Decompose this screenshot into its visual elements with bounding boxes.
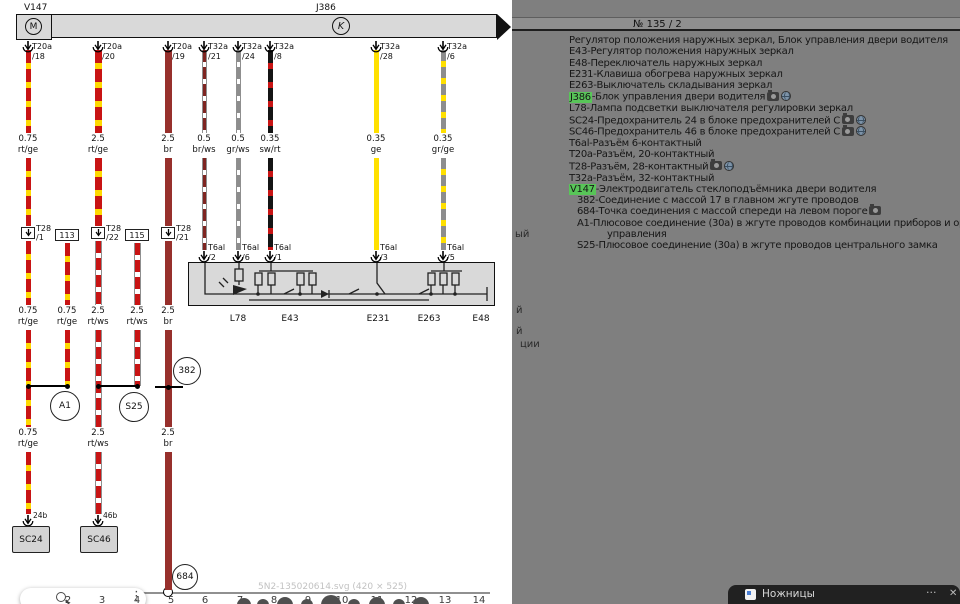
component-box	[188, 262, 495, 306]
wire-gauge-label: 0.35 ge	[367, 134, 386, 156]
legend-line: J386-Блок управления двери водителя	[569, 91, 960, 103]
wire-segment	[268, 50, 273, 133]
t28-name: T28	[106, 224, 121, 233]
globe-icon[interactable]	[856, 115, 866, 125]
t6al-name: T6al	[380, 243, 397, 252]
junction-ref-circle: A1	[50, 391, 80, 421]
component-circuitry	[189, 263, 496, 307]
legend-line: Е231-Клавиша обогрева наружных зеркал	[569, 69, 960, 80]
wire-gauge-label: 0.75 rt/ge	[57, 306, 77, 328]
wire-segment	[95, 50, 102, 133]
t28-name: T28	[36, 224, 51, 233]
wire-segment	[65, 243, 70, 305]
legend-line: V147-Электродвигатель стеклоподъёмника д…	[569, 184, 960, 195]
t28-pin-number: /22	[106, 233, 119, 242]
wire-gauge-label: 0.35 sw/rt	[259, 134, 280, 156]
component-label: E263	[418, 314, 441, 324]
wire-segment	[165, 330, 172, 427]
fuse-pin-label: 46b	[103, 511, 117, 520]
wire-segment	[134, 243, 141, 305]
snipping-tool-title: Ножницы	[762, 588, 815, 600]
wire-segment	[441, 50, 446, 133]
wire-gauge-label: 2.5 rt/ge	[88, 134, 108, 156]
fuse-box: SC46	[80, 526, 118, 553]
wire-segment	[95, 241, 102, 305]
v147-label: V147	[24, 3, 47, 13]
connector-pin-number: /24	[242, 52, 255, 61]
v147-motor-box: M	[16, 14, 52, 40]
ruler-number: 13	[439, 595, 452, 604]
camera-icon[interactable]	[842, 127, 854, 136]
pagination-dot[interactable]	[277, 597, 293, 604]
junction-dot	[135, 384, 140, 389]
wire-segment	[26, 241, 31, 305]
t6al-pin-number: /3	[380, 253, 388, 262]
snipping-tool-app-icon	[745, 589, 756, 600]
connector-name: T20a	[172, 42, 192, 51]
junction-line	[28, 385, 67, 387]
connector-name: T32a	[380, 42, 400, 51]
legend-line: Регулятор положения наружных зеркал, Бло…	[569, 35, 960, 46]
wire-segment	[202, 50, 207, 133]
wire-segment	[236, 158, 241, 250]
camera-icon[interactable]	[710, 161, 722, 170]
globe-icon[interactable]	[781, 91, 791, 101]
ruler-number: 2	[65, 595, 71, 604]
clipped-text-fragment: й	[516, 305, 523, 316]
t28-pin-box	[161, 227, 175, 239]
legend-line: L78-Лампа подсветки выключателя регулиро…	[569, 103, 960, 114]
junction-ref-circle: 684	[172, 564, 198, 590]
ruler-number: 14	[473, 595, 486, 604]
clipped-text-fragment: ции	[520, 339, 540, 350]
junction-dot	[166, 385, 171, 390]
legend-line: 684-Точка соединения с массой спереди на…	[569, 206, 960, 217]
junction-ref-circle: S25	[119, 392, 149, 422]
wire-segment	[65, 330, 70, 386]
page-number: № 135 / 2	[633, 19, 682, 30]
wire-segment	[95, 330, 102, 427]
legend-line: S25-Плюсовое соединение (30а) в жгуте пр…	[569, 240, 960, 251]
wire-segment	[26, 50, 31, 133]
wire-gauge-label: 0.5 gr/ws	[226, 134, 249, 156]
connector-pin-number: /21	[208, 52, 221, 61]
component-label: E48	[472, 314, 489, 324]
t6al-name: T6al	[208, 243, 225, 252]
camera-icon[interactable]	[842, 115, 854, 124]
connector-name: T32a	[242, 42, 262, 51]
component-legend: Регулятор положения наружных зеркал, Бло…	[569, 35, 960, 252]
connector-name: T32a	[447, 42, 467, 51]
motor-icon: M	[25, 18, 42, 35]
wire-gauge-label: 0.75 rt/ge	[18, 306, 38, 328]
legend-line: SC46-Предохранитель 46 в блоке предохран…	[569, 126, 960, 138]
pagination-dot[interactable]	[257, 599, 269, 604]
clipped-text-fragment: ый	[515, 229, 529, 240]
connector-name: T20a	[32, 42, 52, 51]
legend-line: T32a-Разъём, 32-контактный	[569, 173, 960, 184]
connector-name: T32a	[274, 42, 294, 51]
wire-segment	[26, 330, 31, 427]
wire-segment	[165, 241, 172, 305]
camera-icon[interactable]	[767, 92, 779, 101]
t28-pin-box	[91, 227, 105, 239]
legend-line: А1-Плюсовое соединение (30а) в жгуте про…	[569, 218, 960, 229]
wire-gauge-label: 2.5 rt/ws	[87, 306, 108, 328]
t6al-pin-number: /1	[274, 253, 282, 262]
wire-segment	[268, 158, 273, 250]
connector-name: T20a	[102, 42, 122, 51]
globe-icon[interactable]	[856, 126, 866, 136]
wire-segment	[26, 158, 31, 226]
legend-line: T6al-Разъём 6-контактный	[569, 138, 960, 149]
t6al-name: T6al	[242, 243, 259, 252]
junction-line	[98, 385, 137, 387]
next-page-arrow[interactable]	[497, 14, 511, 40]
j386-bus-bar: K	[18, 14, 497, 38]
legend-line: Е263-Выключатель складывания зеркал	[569, 80, 960, 91]
ruler-number: 5	[168, 595, 174, 604]
legend-line: Е43-Регулятор положения наружных зеркал	[569, 46, 960, 57]
wire-segment	[202, 158, 207, 250]
wire-gauge-label: 0.5 br/ws	[192, 134, 215, 156]
ruler-number: 6	[202, 595, 208, 604]
component-label: E231	[367, 314, 390, 324]
pagination-dot[interactable]	[301, 599, 313, 604]
snip-more-button[interactable]: ···	[926, 586, 937, 599]
wire-segment	[165, 452, 172, 590]
pagination-dot[interactable]	[348, 599, 360, 604]
camera-icon[interactable]	[869, 206, 881, 215]
wire-gauge-label: 0.35 gr/ge	[432, 134, 454, 156]
wiring-diagram-canvas: K M V147 J386	[0, 0, 512, 604]
legend-panel: № 135 / 2 Регулятор положения наружных з…	[512, 0, 960, 604]
legend-line: Е48-Переключатель наружных зеркал	[569, 58, 960, 69]
snipping-tool-titlebar[interactable]: Ножницы ··· ✕	[728, 585, 960, 604]
j386-label: J386	[316, 3, 336, 13]
pagination-dot[interactable]	[393, 599, 405, 604]
connector-pin-number: /28	[380, 52, 393, 61]
t28-pin-number: /1	[36, 233, 44, 242]
wire-segment	[374, 50, 379, 133]
image-filename-watermark: 5N2-135020614.svg (420 × 525)	[258, 582, 407, 592]
junction-dot	[96, 384, 101, 389]
globe-icon[interactable]	[724, 161, 734, 171]
floating-image-toolbar: ⋮	[20, 588, 146, 604]
legend-line: T28-Разъём, 28-контактный	[569, 161, 960, 173]
component-label: L78	[230, 314, 246, 324]
junction-ref-circle: 382	[173, 357, 201, 385]
connector-pin-number: /18	[32, 52, 45, 61]
wire-gauge-label: 2.5 rt/ws	[126, 306, 147, 328]
highlighted-component-code[interactable]: J386	[569, 92, 592, 103]
t28-name: T28	[176, 224, 191, 233]
legend-line: управления	[569, 229, 960, 240]
t6al-pin-number: /6	[242, 253, 250, 262]
wire-gauge-label: 2.5 br	[161, 306, 175, 328]
wire-gauge-label: 2.5 br	[161, 134, 175, 156]
terminal-box: 115	[125, 229, 149, 241]
junction-dot	[65, 384, 70, 389]
component-label: E43	[281, 314, 298, 324]
ruler-number: 4	[134, 595, 140, 604]
wire-segment	[26, 452, 31, 514]
connector-pin-number: /19	[172, 52, 185, 61]
wire-gauge-label: 2.5 rt/ws	[87, 428, 108, 450]
wire-segment	[441, 158, 446, 250]
t6al-name: T6al	[447, 243, 464, 252]
t28-pin-number: /21	[176, 233, 189, 242]
wire-gauge-label: 2.5 br	[161, 428, 175, 450]
t28-pin-box	[21, 227, 35, 239]
wire-segment	[165, 158, 172, 226]
fuse-pin-label: 24b	[33, 511, 47, 520]
wire-segment	[165, 50, 172, 133]
ruler-number: 3	[99, 595, 105, 604]
pagination-dot[interactable]	[413, 597, 429, 604]
connector-pin-number: /20	[102, 52, 115, 61]
junction-dot	[26, 384, 31, 389]
wire-segment	[95, 452, 102, 514]
page-number-bar: № 135 / 2	[512, 17, 960, 31]
wire-segment	[374, 158, 379, 250]
connector-pin-number: /8	[274, 52, 282, 61]
fuse-box: SC24	[12, 526, 50, 553]
wire-gauge-label: 0.75 rt/ge	[18, 428, 38, 450]
connector-name: T32a	[208, 42, 228, 51]
legend-line: SC24-Предохранитель 24 в блоке предохран…	[569, 115, 960, 127]
highlighted-component-code[interactable]: V147	[569, 184, 596, 195]
legend-line: 382-Соединение с массой 17 в главном жгу…	[569, 195, 960, 206]
clamp-symbol-icon: K	[332, 17, 350, 35]
snip-close-button[interactable]: ✕	[949, 588, 957, 599]
wire-segment	[95, 158, 102, 226]
legend-line: T20a-Разъём, 20-контактный	[569, 149, 960, 160]
clipped-text-fragment: й	[516, 326, 523, 337]
t6al-pin-number: /5	[447, 253, 455, 262]
t6al-pin-number: /2	[208, 253, 216, 262]
terminal-box: 113	[55, 229, 79, 241]
pagination-dot[interactable]	[237, 598, 251, 604]
connector-pin-number: /6	[447, 52, 455, 61]
wire-gauge-label: 0.75 rt/ge	[18, 134, 38, 156]
wire-segment	[236, 50, 241, 133]
t6al-name: T6al	[274, 243, 291, 252]
wire-segment	[134, 330, 141, 386]
screen: K M V147 J386	[0, 0, 960, 604]
